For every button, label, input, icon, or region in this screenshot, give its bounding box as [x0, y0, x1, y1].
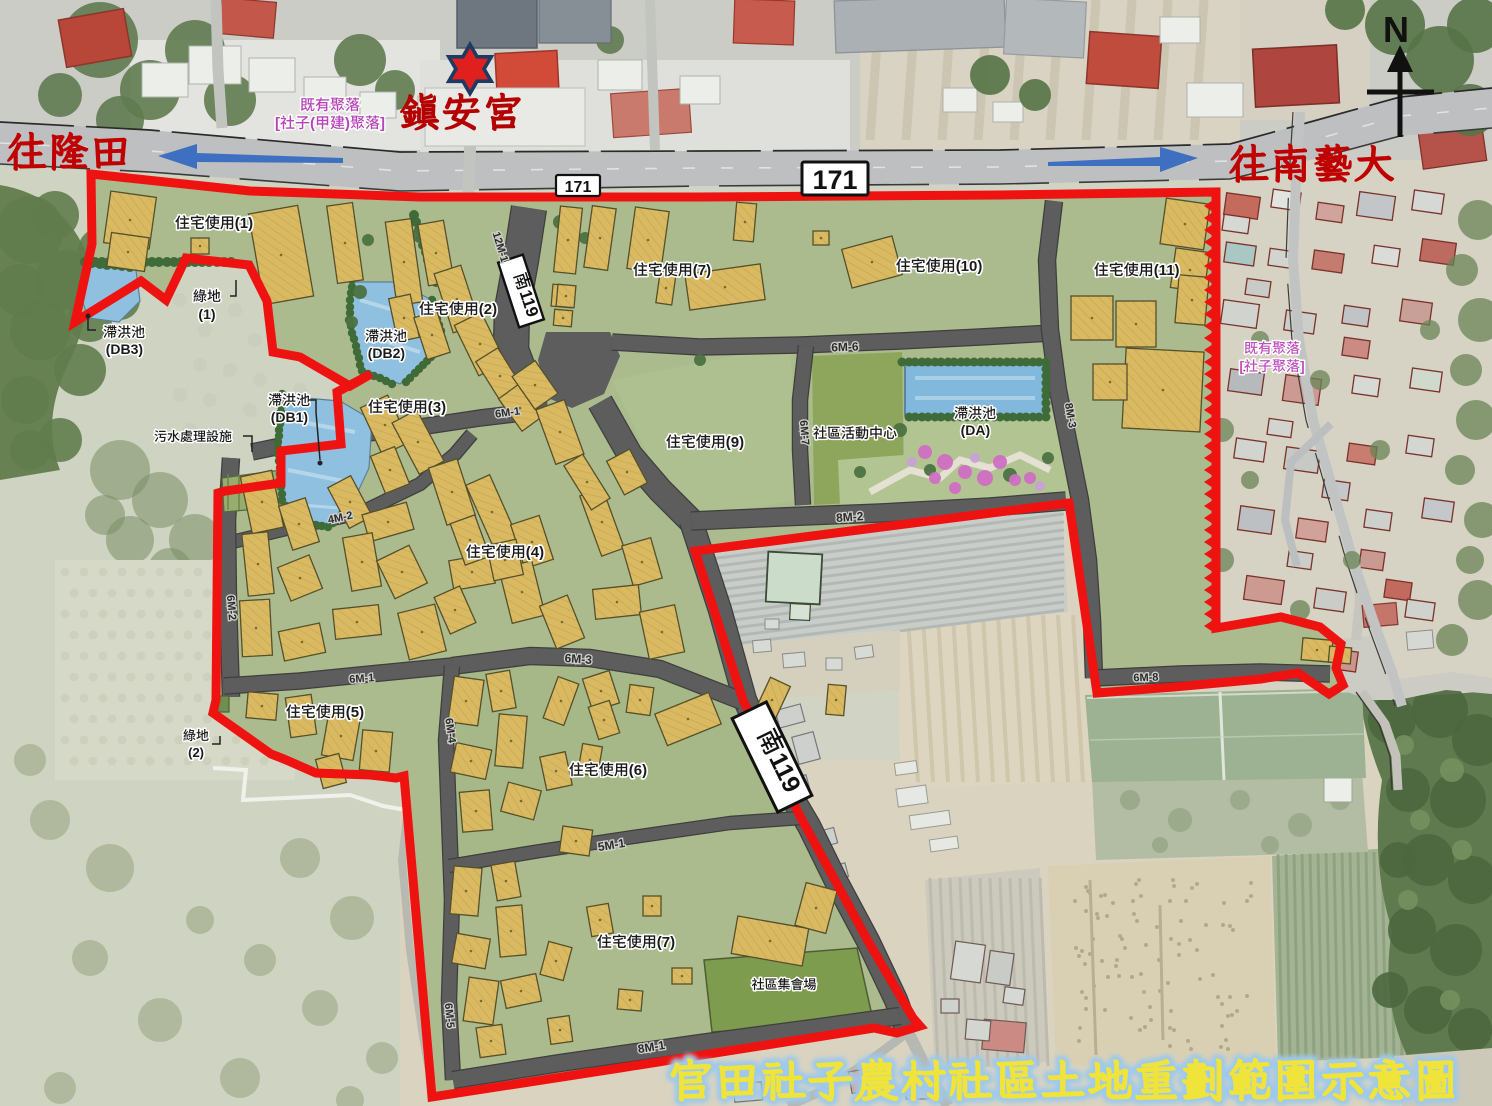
svg-text:(4): (4) — [526, 544, 544, 561]
svg-text:(6): (6) — [629, 762, 647, 779]
svg-text:(DB2): (DB2) — [368, 345, 405, 361]
svg-text:(9): (9) — [726, 434, 744, 451]
svg-text:(: ( — [310, 115, 315, 132]
svg-text:]: ] — [380, 115, 385, 132]
svg-text:(1): (1) — [235, 215, 253, 232]
svg-text:6M-6: 6M-6 — [831, 340, 859, 355]
svg-text:N: N — [1383, 9, 1409, 50]
svg-text:(7): (7) — [693, 262, 711, 279]
svg-text:(11): (11) — [1154, 262, 1180, 279]
svg-text:[: [ — [1239, 358, 1244, 374]
svg-text:): ) — [345, 115, 350, 132]
svg-text:]: ] — [1300, 358, 1305, 374]
svg-text:171: 171 — [565, 179, 592, 196]
svg-text:(2): (2) — [188, 745, 204, 760]
svg-text:[: [ — [275, 115, 280, 132]
svg-text:(DB3): (DB3) — [106, 341, 143, 357]
svg-text:(DB1): (DB1) — [271, 409, 308, 425]
svg-text:(5): (5) — [346, 704, 364, 721]
svg-text:6M-7: 6M-7 — [797, 420, 811, 446]
svg-text:(1): (1) — [198, 306, 215, 322]
svg-text:6M-8: 6M-8 — [1133, 672, 1158, 685]
svg-text:(7): (7) — [657, 934, 675, 951]
svg-text:(2): (2) — [479, 301, 497, 318]
svg-text:(10): (10) — [956, 258, 983, 275]
svg-text:(DA): (DA) — [961, 422, 991, 438]
svg-text:6M-2: 6M-2 — [224, 595, 238, 621]
svg-text:8M-2: 8M-2 — [836, 509, 865, 525]
svg-text:(3): (3) — [428, 399, 446, 416]
svg-text:6M-1: 6M-1 — [349, 672, 375, 686]
svg-text:6M-3: 6M-3 — [564, 651, 593, 667]
svg-text:171: 171 — [812, 165, 857, 195]
